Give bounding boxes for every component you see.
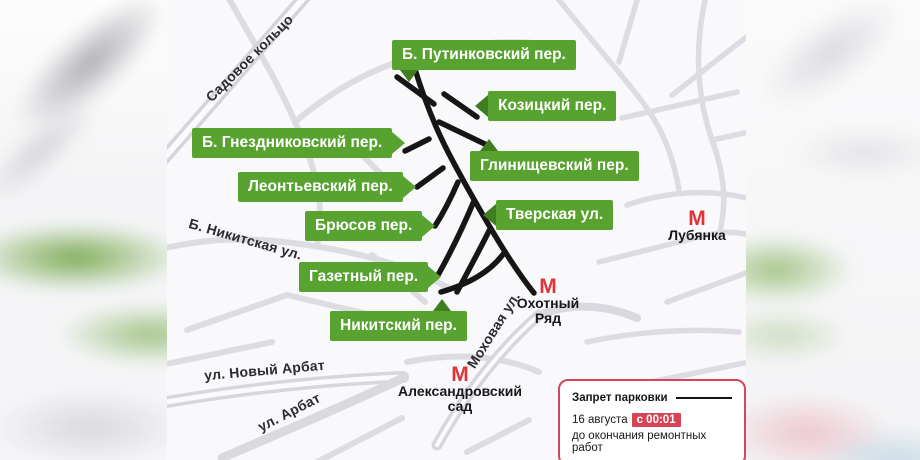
label-pointer-right-icon [392,132,405,154]
metro-name: сад [398,399,522,414]
closure-label-bryusov: Брюсов пер. [305,211,422,241]
label-pointer-right-icon [403,176,416,198]
closure-label-text: Б. Путинковский пер. [402,46,566,63]
blurred-strip-right [746,0,920,460]
map-infographic: Садовое кольцо Б. Никитская ул. ул. Новы… [0,0,920,460]
blur-gray-blob [761,115,920,190]
legend-title: Запрет парковки [572,392,668,404]
closure-label-gazetny: Газетный пер. [299,262,428,292]
metro-lubyanka: М Лубянка [668,210,726,243]
label-pointer-up-icon [433,299,451,311]
closure-label-kozitsky: Козицкий пер. [488,91,616,121]
closed-road-line-swatch [676,397,732,399]
closure-label-tverskaya: Тверская ул. [496,200,613,230]
metro-logo-icon: М [668,210,726,228]
blur-green-blob [746,298,876,373]
closure-label-glinishchevsky: Глинищевский пер. [470,151,639,181]
metro-name: Лубянка [668,228,726,243]
closure-label-text: Леонтьевский пер. [248,178,393,195]
blur-green-blob [25,292,167,377]
blur-blue-blob [781,415,920,460]
metro-name: Ряд [517,311,579,326]
blur-green-blob [0,210,167,305]
label-pointer-right-icon [422,215,435,237]
closure-label-nikitsky: Никитский пер. [330,311,467,341]
legend-duration: до окончания ремонтных работ [572,430,732,454]
metro-logo-icon: М [517,278,579,296]
closure-label-leontyevsky: Леонтьевский пер. [238,172,403,202]
closure-label-text: Глинищевский пер. [480,157,629,174]
label-pointer-left-icon [475,95,488,117]
closure-label-putinkovsky: Б. Путинковский пер. [392,40,576,70]
legend-time-badge: с 00:01 [632,413,681,427]
label-pointer-down-icon [400,70,418,82]
closure-label-text: Газетный пер. [309,268,418,285]
metro-okhotny-ryad: М Охотный Ряд [517,278,579,326]
label-pointer-right-icon [428,266,441,288]
closure-label-text: Брюсов пер. [315,217,412,234]
blur-gray-blob [0,375,167,460]
closure-label-text: Тверская ул. [506,206,603,223]
legend-box: Запрет парковки 16 августа с 00:01 до ок… [558,379,746,460]
metro-aleksandrovsky-sad: М Александровский сад [398,366,522,414]
label-pointer-left-icon [483,204,496,226]
metro-name: Александровский [398,384,522,399]
blurred-strip-left [0,0,167,460]
label-pointer-up-icon [480,139,498,151]
closure-label-text: Козицкий пер. [498,97,606,114]
map-canvas: Садовое кольцо Б. Никитская ул. ул. Новы… [167,0,746,460]
closure-label-gnezdnikovsky: Б. Гнездниковский пер. [192,128,392,158]
closure-label-text: Б. Гнездниковский пер. [202,134,382,151]
legend-date: 16 августа [572,414,628,426]
metro-logo-icon: М [398,366,522,384]
metro-name: Охотный [517,296,579,311]
closure-label-text: Никитский пер. [340,317,457,334]
